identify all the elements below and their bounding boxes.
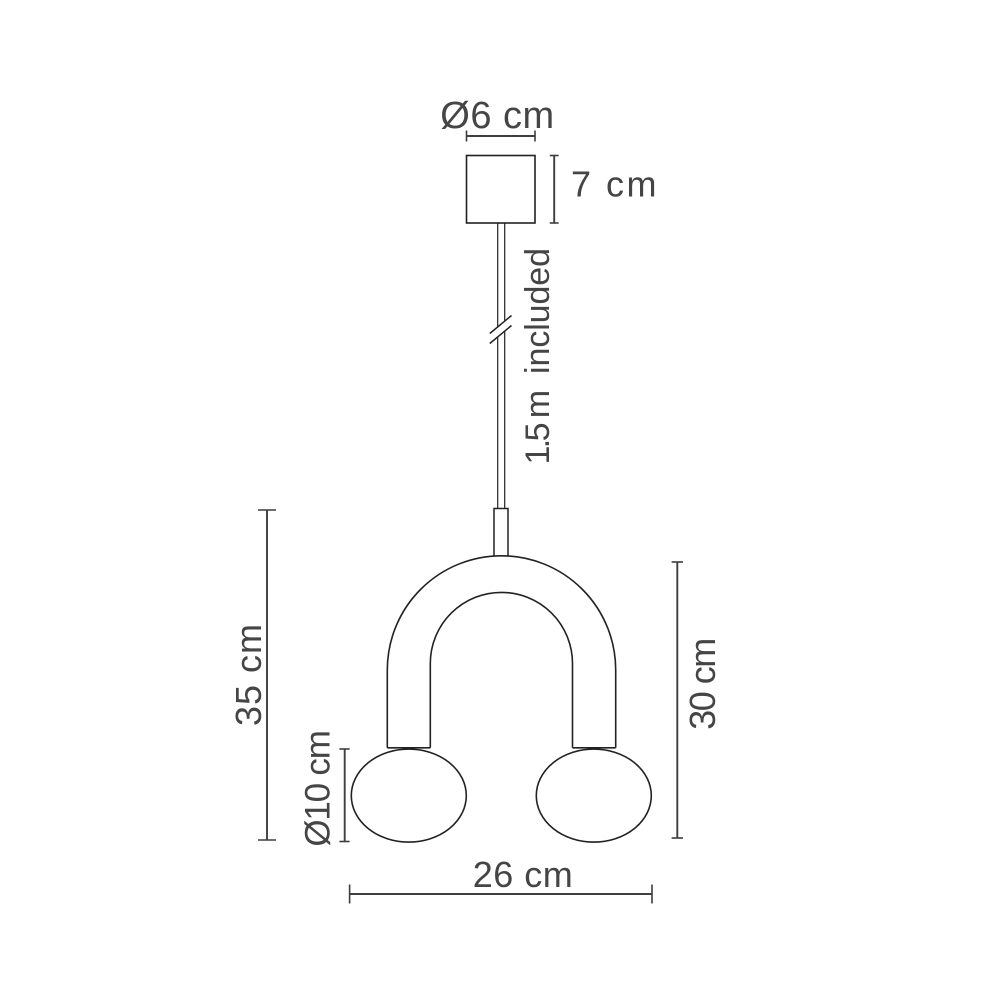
svg-text:included: included	[519, 248, 557, 374]
svg-text:Ø6 cm: Ø6 cm	[440, 95, 554, 137]
svg-text:26 cm: 26 cm	[473, 854, 574, 895]
svg-text:35 cm: 35 cm	[228, 623, 269, 726]
svg-text:7 cm: 7 cm	[571, 164, 659, 205]
svg-text:30 cm: 30 cm	[682, 639, 723, 730]
svg-text:Ø10 cm: Ø10 cm	[299, 731, 338, 846]
svg-text:1.5 m: 1.5 m	[519, 391, 557, 464]
